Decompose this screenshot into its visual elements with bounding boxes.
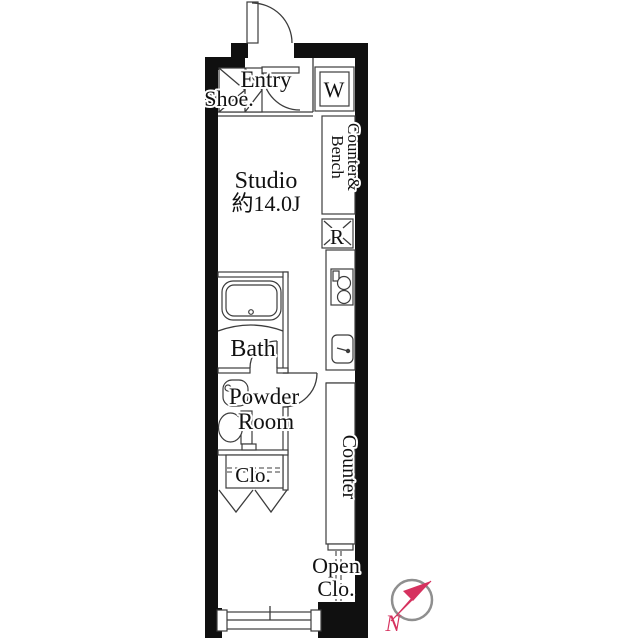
powder-room-label-1: Powder bbox=[229, 384, 300, 409]
fridge-label: R bbox=[330, 225, 344, 249]
studio-size-label: 約14.0J bbox=[231, 191, 301, 216]
kitchen-unit bbox=[326, 250, 355, 383]
floor-plan-drawing: N Shoe. Entry W Counter& Bench Studio 約1… bbox=[0, 0, 640, 640]
folding-door-icon bbox=[219, 490, 287, 512]
counter-bench-label-2: Bench bbox=[328, 135, 347, 179]
kitchen-sink-icon bbox=[332, 335, 353, 363]
open-closet-label-2: Clo. bbox=[317, 576, 354, 601]
floor-plan: N Shoe. Entry W Counter& Bench Studio 約1… bbox=[0, 0, 640, 640]
compass-north-label: N bbox=[384, 611, 402, 636]
entry-label: Entry bbox=[240, 67, 292, 92]
compass-icon: N bbox=[384, 580, 432, 636]
bathtub-icon bbox=[218, 281, 283, 331]
washer-label: W bbox=[324, 77, 345, 102]
bath-label: Bath bbox=[230, 336, 275, 362]
powder-room-label-2: Room bbox=[238, 409, 294, 434]
stove-icon bbox=[331, 269, 353, 305]
counter-label: Counter bbox=[338, 435, 360, 500]
closet-label: Clo. bbox=[235, 463, 271, 487]
open-closet-label-1: Open bbox=[312, 553, 360, 578]
window-icon bbox=[217, 606, 321, 631]
